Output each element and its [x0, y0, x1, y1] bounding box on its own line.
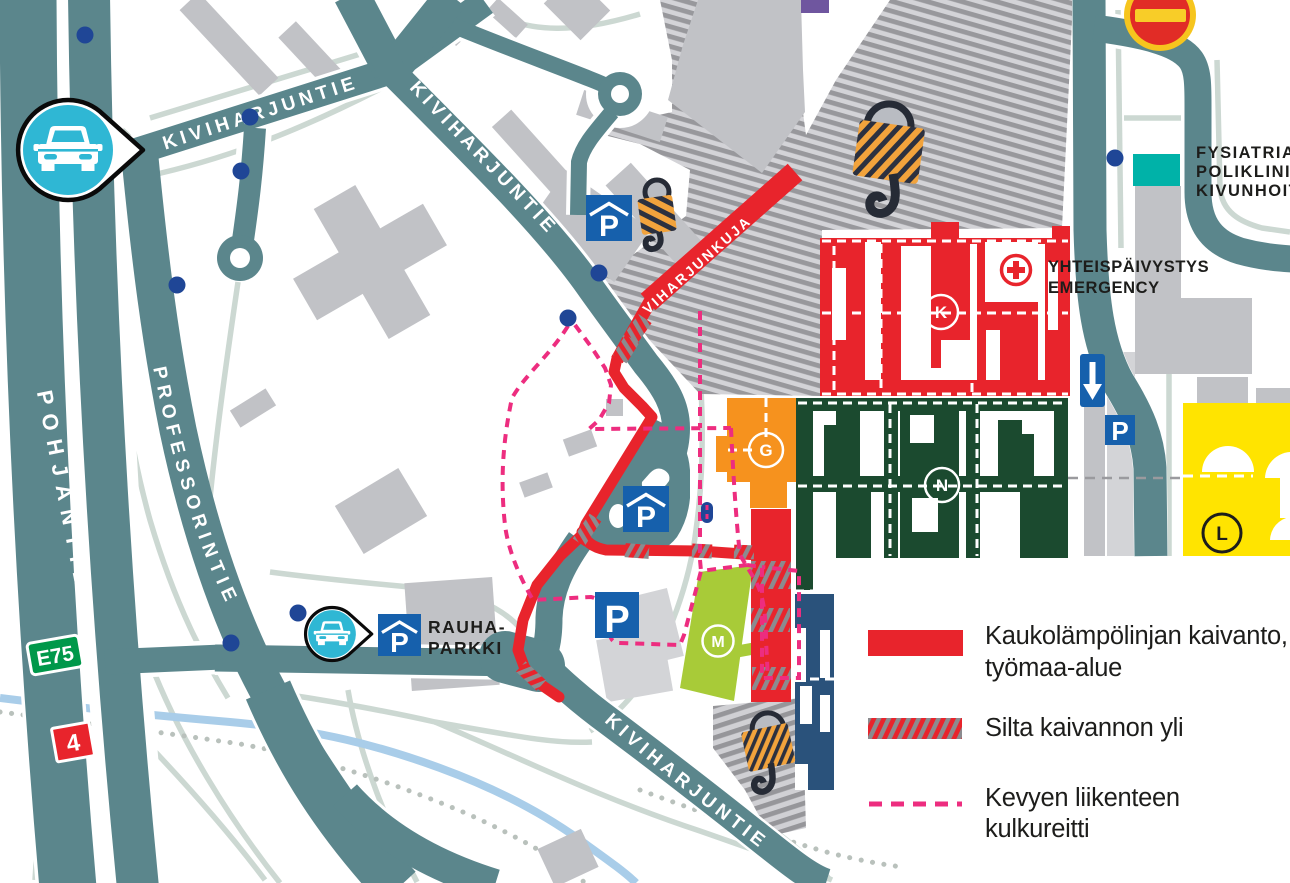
- svg-text:G: G: [759, 441, 772, 460]
- svg-text:Kevyen liikenteen: Kevyen liikenteen: [985, 784, 1180, 812]
- svg-text:K: K: [935, 303, 948, 322]
- svg-text:FYSIATRIAN: FYSIATRIAN: [1196, 144, 1290, 162]
- svg-text:L: L: [1216, 524, 1228, 545]
- svg-text:Kaukolämpölinjan kaivanto,: Kaukolämpölinjan kaivanto,: [985, 622, 1288, 650]
- svg-text:työmaa-alue: työmaa-alue: [985, 654, 1122, 682]
- svg-text:P: P: [599, 210, 619, 243]
- svg-text:RAUHA-: RAUHA-: [428, 617, 506, 637]
- svg-text:P: P: [1111, 416, 1128, 446]
- svg-text:P: P: [390, 627, 409, 658]
- svg-text:P: P: [636, 501, 656, 534]
- svg-text:POLIKLINIKKA: POLIKLINIKKA: [1196, 163, 1290, 181]
- svg-text:Silta kaivannon yli: Silta kaivannon yli: [985, 714, 1183, 742]
- svg-text:P: P: [604, 599, 629, 641]
- svg-text:YHTEISPÄIVYSTYS: YHTEISPÄIVYSTYS: [1048, 258, 1209, 276]
- svg-text:N: N: [936, 476, 948, 495]
- svg-text:PARKKI: PARKKI: [428, 638, 503, 658]
- svg-text:KIVUNHOITO: KIVUNHOITO: [1196, 182, 1290, 200]
- svg-text:M: M: [711, 634, 724, 651]
- svg-text:EMERGENCY: EMERGENCY: [1048, 279, 1160, 297]
- svg-text:kulkureitti: kulkureitti: [985, 815, 1089, 843]
